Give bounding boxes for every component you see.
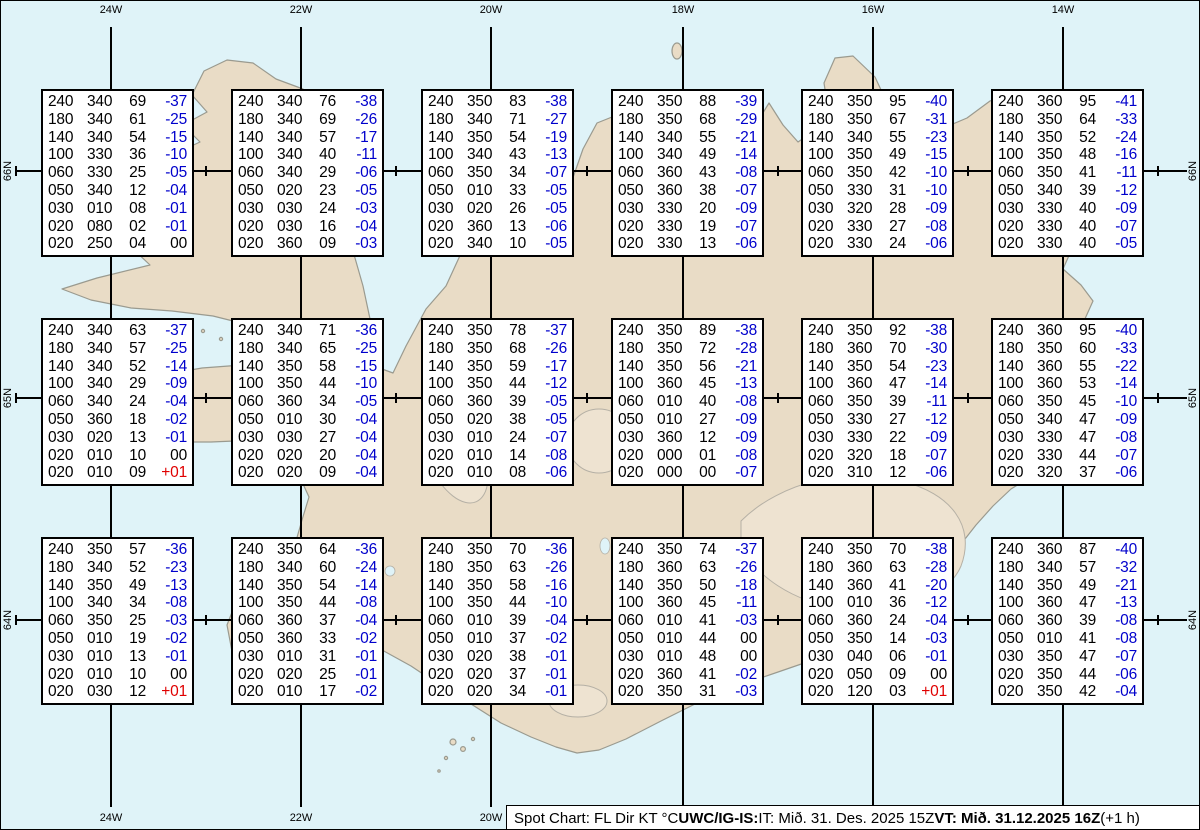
temp-value: -12 <box>917 594 947 612</box>
wind-dir-value: 340 <box>87 375 115 393</box>
wind-speed-value: 10 <box>126 447 146 465</box>
temp-value: -06 <box>1107 666 1137 684</box>
wind-speed-value: 44 <box>506 594 526 612</box>
wind-speed-value: 31 <box>886 182 906 200</box>
temp-value: 00 <box>727 648 757 666</box>
grid-tick <box>15 615 17 625</box>
wind-dir-value: 080 <box>87 218 115 236</box>
wind-speed-value: 28 <box>886 200 906 218</box>
vestmannaeyjar-island <box>444 756 447 759</box>
spot-row: 06034024-04 <box>48 393 187 411</box>
wind-speed-value: 47 <box>1076 594 1096 612</box>
wind-speed-value: 95 <box>886 93 906 111</box>
wind-speed-value: 34 <box>506 683 526 701</box>
wind-speed-value: 45 <box>1076 393 1096 411</box>
temp-value: -01 <box>347 648 377 666</box>
flight-level-value: 060 <box>808 393 836 411</box>
wind-speed-value: 24 <box>316 200 336 218</box>
temp-value: -02 <box>347 630 377 648</box>
wind-dir-value: 010 <box>87 464 115 482</box>
wind-speed-value: 55 <box>696 129 716 147</box>
flight-level-value: 020 <box>238 683 266 701</box>
wind-speed-value: 39 <box>1076 182 1096 200</box>
spot-row: 14034057-17 <box>238 129 377 147</box>
spot-row: 06036039-08 <box>998 612 1137 630</box>
wind-dir-value: 320 <box>847 200 875 218</box>
temp-value: -38 <box>917 541 947 559</box>
wind-dir-value: 330 <box>847 429 875 447</box>
flight-level-value: 020 <box>238 464 266 482</box>
spot-row: 05001027-09 <box>618 411 757 429</box>
spot-row: 18034071-27 <box>428 111 567 129</box>
wind-speed-value: 44 <box>696 630 716 648</box>
wind-dir-value: 010 <box>277 683 305 701</box>
temp-value: -09 <box>157 375 187 393</box>
temp-value: -24 <box>347 559 377 577</box>
spot-row: 10034029-09 <box>48 375 187 393</box>
grid-tick <box>777 615 779 625</box>
wind-dir-value: 330 <box>847 218 875 236</box>
spot-row: 10036053-14 <box>998 375 1137 393</box>
wind-speed-value: 68 <box>506 340 526 358</box>
wind-dir-value: 350 <box>467 340 495 358</box>
wind-speed-value: 76 <box>316 93 336 111</box>
wind-dir-value: 350 <box>1037 577 1065 595</box>
wind-speed-value: 27 <box>316 429 336 447</box>
temp-value: -26 <box>347 111 377 129</box>
temp-value: -30 <box>917 340 947 358</box>
wind-speed-value: 49 <box>886 146 906 164</box>
wind-speed-value: 36 <box>886 594 906 612</box>
spot-row: 02001014-08 <box>428 447 567 465</box>
wind-dir-value: 360 <box>277 612 305 630</box>
wind-dir-value: 010 <box>87 666 115 684</box>
flight-level-value: 020 <box>808 447 836 465</box>
temp-value: -09 <box>1107 200 1137 218</box>
temp-value: -04 <box>1107 683 1137 701</box>
flight-level-value: 030 <box>238 200 266 218</box>
wind-speed-value: 41 <box>1076 630 1096 648</box>
wind-speed-value: 27 <box>696 411 716 429</box>
wind-dir-value: 360 <box>1037 541 1065 559</box>
spot-box: 24035092-3818036070-3014035054-231003604… <box>801 318 954 486</box>
spot-row: 02008002-01 <box>48 218 187 236</box>
spot-row: 24034071-36 <box>238 322 377 340</box>
spot-row: 02033040-05 <box>998 235 1137 253</box>
wind-speed-value: 13 <box>506 218 526 236</box>
flight-level-value: 100 <box>808 594 836 612</box>
spot-row: 02003012+01 <box>48 683 187 701</box>
wind-speed-value: 31 <box>696 683 716 701</box>
wind-speed-value: 71 <box>506 111 526 129</box>
wind-dir-value: 340 <box>847 129 875 147</box>
wind-speed-value: 42 <box>886 164 906 182</box>
wind-dir-value: 000 <box>657 464 685 482</box>
wind-dir-value: 000 <box>657 447 685 465</box>
wind-speed-value: 44 <box>316 375 336 393</box>
wind-dir-value: 330 <box>847 235 875 253</box>
spot-box: 24034076-3818034069-2614034057-171003404… <box>231 89 384 257</box>
wind-speed-value: 64 <box>1076 111 1096 129</box>
grid-tick <box>967 615 969 625</box>
spot-row: 14035054-19 <box>428 129 567 147</box>
spot-row: 14035049-13 <box>48 577 187 595</box>
flight-level-value: 140 <box>808 358 836 376</box>
wind-speed-value: 69 <box>126 93 146 111</box>
flight-level-value: 030 <box>618 648 646 666</box>
wind-dir-value: 340 <box>467 111 495 129</box>
wind-speed-value: 49 <box>1076 577 1096 595</box>
spot-row: 03002013-01 <box>48 429 187 447</box>
wind-speed-value: 26 <box>506 200 526 218</box>
temp-value: -04 <box>347 429 377 447</box>
wind-dir-value: 340 <box>87 358 115 376</box>
wind-speed-value: 37 <box>316 612 336 630</box>
temp-value: -36 <box>347 541 377 559</box>
spot-row: 24035070-38 <box>808 541 947 559</box>
flight-level-value: 180 <box>48 340 76 358</box>
flight-level-value: 060 <box>48 393 76 411</box>
wind-speed-value: 09 <box>316 235 336 253</box>
temp-value: -14 <box>917 375 947 393</box>
flight-level-value: 050 <box>238 411 266 429</box>
temp-value: -05 <box>537 235 567 253</box>
wind-dir-value: 330 <box>657 235 685 253</box>
flight-level-value: 060 <box>618 612 646 630</box>
wind-dir-value: 310 <box>847 464 875 482</box>
spot-row: 10035044-08 <box>238 594 377 612</box>
spot-row: 14034055-23 <box>808 129 947 147</box>
flight-level-value: 240 <box>428 541 456 559</box>
flight-level-value: 060 <box>998 164 1026 182</box>
spot-row: 03002026-05 <box>428 200 567 218</box>
spot-row: 06001041-03 <box>618 612 757 630</box>
wind-speed-value: 23 <box>316 182 336 200</box>
flight-level-value: 140 <box>238 129 266 147</box>
spot-row: 06035041-11 <box>998 164 1137 182</box>
spot-row: 18036063-28 <box>808 559 947 577</box>
wind-dir-value: 020 <box>277 464 305 482</box>
wind-dir-value: 360 <box>847 340 875 358</box>
spot-row: 0200500900 <box>808 666 947 684</box>
temp-value: -01 <box>537 683 567 701</box>
spot-row: 05036018-02 <box>48 411 187 429</box>
wind-dir-value: 010 <box>847 594 875 612</box>
spot-row: 05002038-05 <box>428 411 567 429</box>
flight-level-value: 180 <box>808 340 836 358</box>
flight-level-value: 020 <box>48 447 76 465</box>
flight-level-value: 020 <box>618 218 646 236</box>
wind-dir-value: 350 <box>847 146 875 164</box>
wind-speed-value: 45 <box>696 375 716 393</box>
spot-row: 02032037-06 <box>998 464 1137 482</box>
wind-speed-value: 40 <box>316 146 336 164</box>
temp-value: -36 <box>347 322 377 340</box>
temp-value: -04 <box>917 612 947 630</box>
wind-speed-value: 33 <box>316 630 336 648</box>
temp-value: -40 <box>1107 541 1137 559</box>
flight-level-value: 060 <box>808 612 836 630</box>
wind-speed-value: 45 <box>696 594 716 612</box>
wind-speed-value: 31 <box>316 648 336 666</box>
wind-speed-value: 55 <box>886 129 906 147</box>
wind-dir-value: 330 <box>87 164 115 182</box>
spot-row: 03033020-09 <box>618 200 757 218</box>
spot-row: 24036095-41 <box>998 93 1137 111</box>
wind-speed-value: 43 <box>506 146 526 164</box>
wind-dir-value: 120 <box>847 683 875 701</box>
temp-value: -37 <box>157 322 187 340</box>
wind-speed-value: 63 <box>506 559 526 577</box>
wind-speed-value: 12 <box>696 429 716 447</box>
wind-dir-value: 340 <box>87 129 115 147</box>
flight-level-value: 050 <box>618 630 646 648</box>
spot-row: 06036037-04 <box>238 612 377 630</box>
wind-dir-value: 340 <box>87 111 115 129</box>
wind-dir-value: 350 <box>657 93 685 111</box>
spot-row: 10035044-10 <box>428 594 567 612</box>
spot-row: 18034061-25 <box>48 111 187 129</box>
flight-level-value: 140 <box>618 358 646 376</box>
spot-row: 10036047-13 <box>998 594 1137 612</box>
wind-speed-value: 13 <box>126 429 146 447</box>
wind-speed-value: 10 <box>126 666 146 684</box>
spot-row: 24035092-38 <box>808 322 947 340</box>
wind-dir-value: 010 <box>657 393 685 411</box>
spot-row: 10034040-11 <box>238 146 377 164</box>
flight-level-value: 050 <box>428 182 456 200</box>
grid-tick <box>15 166 17 176</box>
wind-speed-value: 49 <box>126 577 146 595</box>
wind-speed-value: 83 <box>506 93 526 111</box>
wind-dir-value: 330 <box>1037 235 1065 253</box>
flight-level-value: 100 <box>48 375 76 393</box>
flight-level-value: 050 <box>998 182 1026 200</box>
temp-value: +01 <box>157 683 187 701</box>
flight-level-value: 240 <box>808 93 836 111</box>
temp-value: -19 <box>537 129 567 147</box>
temp-value: -04 <box>347 612 377 630</box>
wind-dir-value: 010 <box>277 411 305 429</box>
temp-value: -06 <box>537 218 567 236</box>
spot-row: 10001036-12 <box>808 594 947 612</box>
temp-value: -13 <box>537 146 567 164</box>
temp-value: -08 <box>917 218 947 236</box>
wind-speed-value: 40 <box>1076 200 1096 218</box>
spot-box: 24035070-3818036063-2814036041-201000103… <box>801 537 954 705</box>
spot-row: 06001040-08 <box>618 393 757 411</box>
wind-speed-value: 34 <box>316 393 336 411</box>
wind-dir-value: 350 <box>467 594 495 612</box>
spot-row: 02033013-06 <box>618 235 757 253</box>
spot-row: 24035078-37 <box>428 322 567 340</box>
temp-value: -12 <box>917 411 947 429</box>
temp-value: -01 <box>157 218 187 236</box>
temp-value: -03 <box>347 235 377 253</box>
temp-value: -05 <box>157 164 187 182</box>
wind-speed-value: 57 <box>126 340 146 358</box>
spot-row: 14035049-21 <box>998 577 1137 595</box>
grid-tick <box>205 166 207 176</box>
spot-row: 18034065-25 <box>238 340 377 358</box>
wind-dir-value: 030 <box>277 429 305 447</box>
flight-level-value: 030 <box>428 200 456 218</box>
temp-value: -39 <box>727 93 757 111</box>
temp-value: -31 <box>917 111 947 129</box>
temp-value: -07 <box>727 182 757 200</box>
wind-speed-value: 30 <box>316 411 336 429</box>
wind-dir-value: 360 <box>657 666 685 684</box>
grid-tick <box>586 166 588 176</box>
wind-speed-value: 63 <box>126 322 146 340</box>
wind-dir-value: 350 <box>1037 648 1065 666</box>
spot-row: 03004006-01 <box>808 648 947 666</box>
spot-row: 03033040-09 <box>998 200 1137 218</box>
temp-value: -36 <box>537 541 567 559</box>
flight-level-value: 180 <box>428 340 456 358</box>
wind-dir-value: 350 <box>657 683 685 701</box>
spot-box: 24036095-4018035060-3314036055-221003605… <box>991 318 1144 486</box>
flight-level-value: 100 <box>238 594 266 612</box>
spot-row: 10034049-14 <box>618 146 757 164</box>
wind-dir-value: 350 <box>847 541 875 559</box>
grid-tick <box>205 615 207 625</box>
spot-row: 03001031-01 <box>238 648 377 666</box>
flight-level-value: 100 <box>808 375 836 393</box>
wind-speed-value: 59 <box>506 358 526 376</box>
longitude-label-top: 16W <box>862 4 885 16</box>
temp-value: -01 <box>157 429 187 447</box>
temp-value: -09 <box>727 411 757 429</box>
flight-level-value: 030 <box>428 429 456 447</box>
wind-speed-value: 44 <box>506 375 526 393</box>
grid-tick <box>1157 393 1159 403</box>
temp-value: -04 <box>347 411 377 429</box>
vestmannaeyjar-island <box>471 737 474 740</box>
temp-value: -13 <box>157 577 187 595</box>
spot-row: 06036043-08 <box>618 164 757 182</box>
temp-value: -17 <box>537 358 567 376</box>
flight-level-value: 050 <box>48 411 76 429</box>
wind-speed-value: 01 <box>696 447 716 465</box>
spot-row: 24035095-40 <box>808 93 947 111</box>
wind-speed-value: 24 <box>126 393 146 411</box>
flight-level-value: 030 <box>998 200 1026 218</box>
flight-level-value: 020 <box>238 666 266 684</box>
spot-row: 24035064-36 <box>238 541 377 559</box>
wind-speed-value: 69 <box>316 111 336 129</box>
wind-dir-value: 020 <box>467 648 495 666</box>
spot-row: 14034055-21 <box>618 129 757 147</box>
flight-level-value: 060 <box>48 612 76 630</box>
temp-value: -12 <box>537 375 567 393</box>
wind-speed-value: 64 <box>316 541 336 559</box>
spot-row: 05002023-05 <box>238 182 377 200</box>
wind-dir-value: 340 <box>277 146 305 164</box>
spot-row: 0200101000 <box>48 447 187 465</box>
spot-row: 10034043-13 <box>428 146 567 164</box>
wind-speed-value: 58 <box>316 358 336 376</box>
spot-row: 10036045-11 <box>618 594 757 612</box>
wind-dir-value: 340 <box>87 322 115 340</box>
flight-level-value: 020 <box>618 666 646 684</box>
wind-dir-value: 340 <box>87 393 115 411</box>
temp-value: -21 <box>1107 577 1137 595</box>
longitude-label-bottom: 20W <box>480 812 503 824</box>
flight-level-value: 020 <box>238 447 266 465</box>
temp-value: -07 <box>727 464 757 482</box>
spot-row: 02033044-07 <box>998 447 1137 465</box>
wind-speed-value: 37 <box>506 666 526 684</box>
wind-dir-value: 350 <box>1037 340 1065 358</box>
grid-tick <box>967 393 969 403</box>
wind-dir-value: 340 <box>277 111 305 129</box>
spot-row: 18035068-26 <box>428 340 567 358</box>
temp-value: -07 <box>1107 218 1137 236</box>
wind-dir-value: 010 <box>467 612 495 630</box>
vestmannaeyjar-island <box>450 739 456 745</box>
wind-speed-value: 24 <box>506 429 526 447</box>
spot-row: 06035034-07 <box>428 164 567 182</box>
flight-level-value: 020 <box>998 666 1026 684</box>
spot-row: 03003024-03 <box>238 200 377 218</box>
wind-speed-value: 34 <box>506 164 526 182</box>
wind-dir-value: 350 <box>847 111 875 129</box>
temp-value: -38 <box>917 322 947 340</box>
flight-level-value: 240 <box>998 322 1026 340</box>
spot-row: 0500104400 <box>618 630 757 648</box>
temp-value: -03 <box>157 612 187 630</box>
wind-speed-value: 20 <box>316 447 336 465</box>
flight-level-value: 030 <box>808 200 836 218</box>
flight-level-value: 050 <box>238 182 266 200</box>
wind-dir-value: 350 <box>87 577 115 595</box>
spot-row: 06035025-03 <box>48 612 187 630</box>
flight-level-value: 180 <box>998 340 1026 358</box>
longitude-label-top: 18W <box>672 4 695 16</box>
temp-value: -02 <box>727 666 757 684</box>
flight-level-value: 050 <box>998 630 1026 648</box>
flight-level-value: 060 <box>998 612 1026 630</box>
spot-row: 06033025-05 <box>48 164 187 182</box>
wind-dir-value: 250 <box>87 235 115 253</box>
temp-value: 00 <box>917 666 947 684</box>
spot-row: 06035039-11 <box>808 393 947 411</box>
wind-speed-value: 47 <box>1076 429 1096 447</box>
spot-box: 24035064-3618034060-2414035054-141003504… <box>231 537 384 705</box>
spot-box: 24035074-3718036063-2614035050-181003604… <box>611 537 764 705</box>
spot-row: 24035088-39 <box>618 93 757 111</box>
wind-speed-value: 33 <box>506 182 526 200</box>
temp-value: -38 <box>537 93 567 111</box>
chart-title: Spot Chart: FL Dir KT °C <box>514 810 678 827</box>
wind-dir-value: 340 <box>277 129 305 147</box>
flight-level-value: 020 <box>238 218 266 236</box>
wind-dir-value: 360 <box>277 393 305 411</box>
wind-dir-value: 350 <box>847 630 875 648</box>
thingvallavatn-lake <box>385 566 395 576</box>
wind-dir-value: 350 <box>467 577 495 595</box>
spot-row: 03003027-04 <box>238 429 377 447</box>
flight-level-value: 180 <box>238 340 266 358</box>
wind-dir-value: 350 <box>1037 129 1065 147</box>
wind-dir-value: 360 <box>467 393 495 411</box>
spot-row: 02033040-07 <box>998 218 1137 236</box>
chart-source: UWC/IG-IS: <box>678 810 758 827</box>
temp-value: -04 <box>347 464 377 482</box>
temp-value: 00 <box>727 630 757 648</box>
flight-level-value: 050 <box>808 411 836 429</box>
